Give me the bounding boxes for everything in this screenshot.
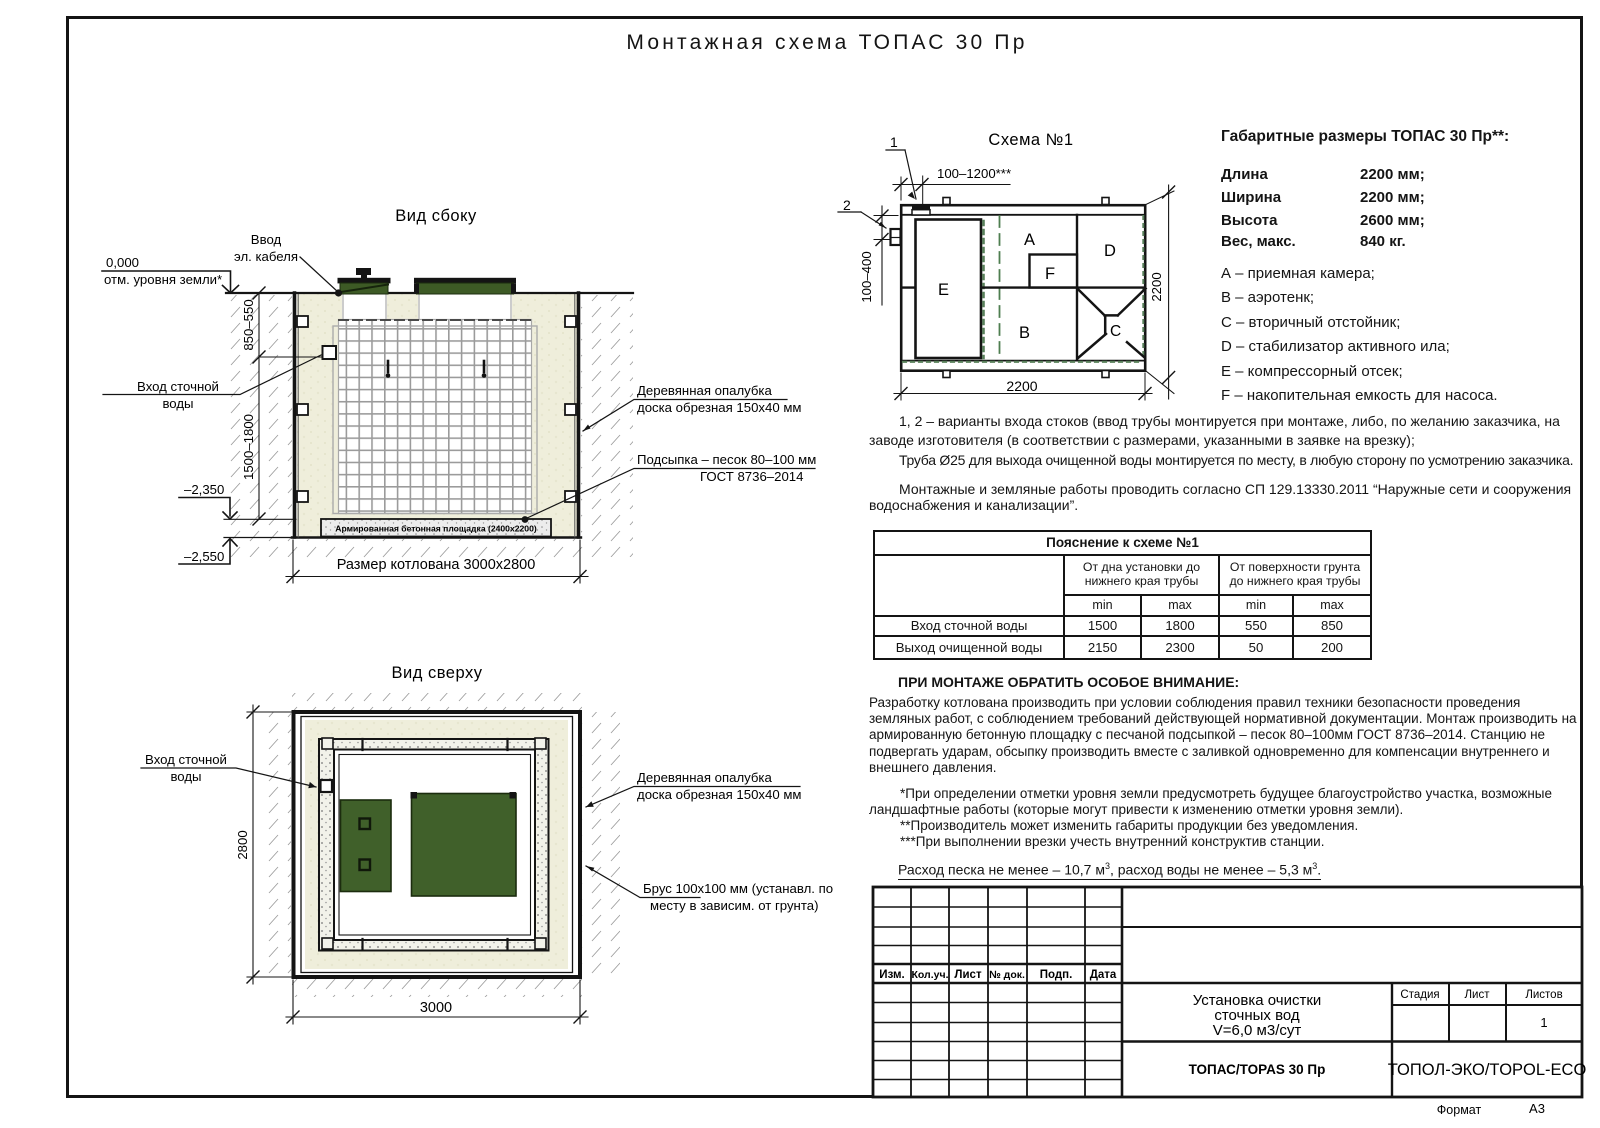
svg-text:2200: 2200 — [1006, 378, 1037, 394]
svg-text:ГОСТ 8736–2014: ГОСТ 8736–2014 — [700, 469, 803, 484]
svg-text:850–550: 850–550 — [241, 299, 256, 350]
svg-text:V=6,0 м3/сут: V=6,0 м3/сут — [1213, 1022, 1302, 1039]
svg-text:ТОПОЛ-ЭКО/TOPOL-ECO: ТОПОЛ-ЭКО/TOPOL-ECO — [1388, 1061, 1587, 1079]
svg-text:1: 1 — [890, 134, 898, 150]
svg-text:100–1200***: 100–1200*** — [937, 166, 1011, 181]
svg-text:F: F — [1045, 265, 1055, 283]
svg-text:100–400: 100–400 — [859, 251, 874, 302]
svg-text:E: E — [938, 281, 949, 299]
svg-text:доска обрезная 150х40 мм: доска обрезная 150х40 мм — [637, 787, 801, 802]
svg-text:2200: 2200 — [1149, 272, 1164, 301]
svg-text:1: 1 — [1540, 1015, 1547, 1030]
svg-text:Вид сверху: Вид сверху — [392, 664, 483, 682]
svg-text:Вид сбоку: Вид сбоку — [395, 207, 477, 225]
svg-text:Стадия: Стадия — [1400, 989, 1439, 1001]
svg-text:Вход сточной: Вход сточной — [145, 752, 227, 767]
svg-text:Изм.: Изм. — [879, 969, 904, 981]
svg-text:Лист: Лист — [954, 969, 982, 981]
svg-text:Вход сточной: Вход сточной — [137, 379, 219, 394]
svg-text:Схема №1: Схема №1 — [988, 131, 1073, 149]
svg-text:2800: 2800 — [235, 830, 250, 859]
svg-text:Брус 100х100 мм (устанавл. по: Брус 100х100 мм (устанавл. по — [643, 881, 833, 896]
svg-text:Деревянная опалубка: Деревянная опалубка — [637, 383, 772, 398]
svg-text:A: A — [1024, 231, 1035, 249]
svg-text:А3: А3 — [1529, 1101, 1545, 1116]
svg-text:воды: воды — [162, 396, 193, 411]
svg-text:1500–1800: 1500–1800 — [241, 414, 256, 480]
svg-text:Ввод: Ввод — [251, 232, 282, 247]
svg-text:№ док.: № док. — [989, 969, 1025, 981]
svg-text:0,000: 0,000 — [106, 255, 139, 270]
svg-text:2: 2 — [843, 197, 851, 213]
svg-text:эл. кабеля: эл. кабеля — [234, 249, 298, 264]
svg-text:3000: 3000 — [420, 1000, 452, 1016]
svg-text:D: D — [1104, 242, 1116, 260]
svg-text:Подп.: Подп. — [1040, 969, 1073, 981]
svg-text:Дата: Дата — [1090, 969, 1117, 981]
svg-text:Деревянная опалубка: Деревянная опалубка — [637, 770, 772, 785]
svg-text:Лист: Лист — [1465, 989, 1491, 1001]
svg-text:ТОПАС/TOPAS 30 Пр: ТОПАС/TOPAS 30 Пр — [1189, 1062, 1326, 1077]
svg-text:Подсыпка – песок 80–100 мм: Подсыпка – песок 80–100 мм — [637, 452, 816, 467]
svg-text:B: B — [1019, 324, 1030, 342]
svg-text:Армированная бетонная площадка: Армированная бетонная площадка (2400х220… — [335, 524, 537, 534]
svg-text:доска обрезная 150х40 мм: доска обрезная 150х40 мм — [637, 400, 801, 415]
svg-text:–2,550: –2,550 — [184, 549, 224, 564]
svg-text:C: C — [1110, 323, 1121, 340]
svg-text:Размер котлована 3000х2800: Размер котлована 3000х2800 — [337, 557, 536, 573]
svg-text:Формат: Формат — [1437, 1103, 1482, 1117]
svg-text:месту в зависим. от грунта): месту в зависим. от грунта) — [650, 898, 818, 913]
svg-text:–2,350: –2,350 — [184, 482, 224, 497]
svg-text:Кол.уч.: Кол.уч. — [911, 969, 948, 981]
svg-text:Листов: Листов — [1525, 989, 1562, 1001]
svg-text:отм. уровня земли*: отм. уровня земли* — [104, 272, 222, 287]
svg-text:воды: воды — [170, 769, 201, 784]
